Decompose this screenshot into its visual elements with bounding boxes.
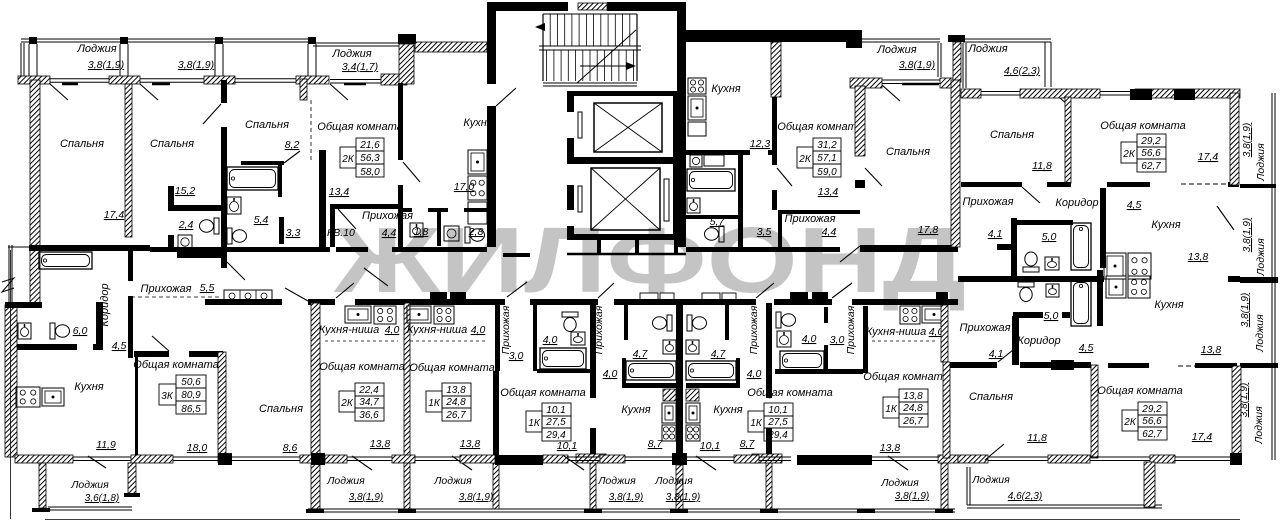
svg-text:Лоджия: Лоджия	[967, 43, 1007, 55]
svg-text:3,8(1,9): 3,8(1,9)	[178, 59, 214, 71]
svg-text:4,6(2,3): 4,6(2,3)	[1004, 65, 1040, 77]
svg-text:27,5: 27,5	[767, 417, 788, 428]
svg-text:31,2: 31,2	[817, 140, 837, 151]
svg-text:18,0: 18,0	[187, 442, 208, 454]
svg-text:3,8(1,9): 3,8(1,9)	[666, 492, 700, 503]
svg-text:17,4: 17,4	[1198, 151, 1219, 163]
svg-text:Прихожая: Прихожая	[959, 322, 1010, 334]
svg-text:Кухня: Кухня	[1151, 219, 1180, 231]
svg-text:3,6(1,8): 3,6(1,8)	[85, 493, 119, 504]
svg-text:2К: 2К	[1123, 417, 1137, 428]
svg-text:11,8: 11,8	[1027, 432, 1047, 444]
svg-text:12,3: 12,3	[750, 138, 771, 150]
svg-text:4,6(2,3): 4,6(2,3)	[1008, 491, 1042, 502]
svg-text:Лоджия: Лоджия	[1255, 143, 1267, 182]
svg-text:Общая комната: Общая комната	[747, 387, 832, 399]
svg-text:59,0: 59,0	[817, 167, 837, 178]
svg-text:11,8: 11,8	[1032, 160, 1052, 172]
svg-text:3К: 3К	[161, 391, 174, 402]
svg-text:2К: 2К	[1122, 149, 1136, 160]
svg-text:21,6: 21,6	[359, 140, 380, 151]
svg-text:Кухня-ниша: Кухня-ниша	[866, 326, 926, 338]
svg-text:17,8: 17,8	[918, 224, 939, 236]
svg-text:80,9: 80,9	[181, 390, 201, 401]
svg-text:3,8(1,9): 3,8(1,9)	[1242, 123, 1253, 157]
svg-text:24,8: 24,8	[902, 403, 923, 414]
svg-text:3,8(1,9): 3,8(1,9)	[1242, 218, 1253, 252]
svg-text:Общая комната: Общая комната	[777, 121, 862, 133]
svg-text:3,8(1,9): 3,8(1,9)	[609, 492, 643, 503]
svg-text:5,4: 5,4	[254, 214, 269, 226]
svg-text:Кухня: Кухня	[621, 404, 650, 416]
svg-text:2К: 2К	[340, 398, 354, 409]
svg-text:58,0: 58,0	[360, 167, 380, 178]
svg-text:Общая комната: Общая комната	[319, 361, 404, 373]
svg-text:Спальня: Спальня	[60, 138, 104, 150]
svg-text:Прихожая: Прихожая	[845, 305, 857, 354]
svg-text:56,3: 56,3	[360, 153, 380, 164]
svg-text:4,0: 4,0	[471, 324, 486, 336]
svg-text:Лоджия: Лоджия	[1255, 238, 1267, 277]
svg-text:3,4(1,7): 3,4(1,7)	[342, 61, 378, 73]
svg-text:Общая комната: Общая комната	[863, 371, 948, 383]
svg-text:Лоджия: Лоджия	[1254, 314, 1266, 353]
svg-text:Спальня: Спальня	[150, 138, 194, 150]
svg-text:Лоджия: Лоджия	[597, 475, 636, 487]
svg-text:13,8: 13,8	[460, 438, 481, 450]
svg-text:Общая комната: Общая комната	[409, 362, 494, 374]
svg-text:10,1: 10,1	[700, 440, 720, 452]
svg-text:Лоджия: Лоджия	[1253, 406, 1265, 445]
svg-text:17,4: 17,4	[104, 209, 125, 221]
svg-text:10,1: 10,1	[768, 405, 787, 416]
svg-text:36,6: 36,6	[359, 410, 379, 421]
svg-text:Прихожая: Прихожая	[500, 305, 512, 354]
svg-text:50,6: 50,6	[181, 377, 201, 388]
svg-text:4,1: 4,1	[988, 228, 1003, 240]
svg-text:29,4: 29,4	[545, 430, 566, 441]
svg-text:2К: 2К	[798, 154, 812, 165]
svg-text:Кухня-ниша: Кухня-ниша	[407, 324, 467, 336]
svg-text:26,7: 26,7	[902, 416, 923, 427]
svg-text:Прихожая: Прихожая	[784, 213, 835, 225]
svg-text:Кухня: Кухня	[711, 83, 740, 95]
svg-text:56,6: 56,6	[1142, 416, 1162, 427]
svg-text:13,8: 13,8	[446, 385, 466, 396]
svg-text:13,8: 13,8	[903, 391, 923, 402]
svg-text:Лоджия: Лоджия	[331, 48, 371, 60]
svg-text:Лоджия: Лоджия	[326, 475, 365, 487]
svg-text:4,0: 4,0	[747, 368, 762, 380]
svg-text:8,7: 8,7	[648, 438, 664, 450]
svg-text:Кухня: Кухня	[713, 404, 742, 416]
svg-text:8,6: 8,6	[283, 442, 298, 454]
svg-text:1К: 1К	[750, 418, 763, 429]
svg-text:4,0: 4,0	[543, 334, 558, 346]
svg-text:4,1: 4,1	[989, 348, 1004, 360]
svg-text:Спальня: Спальня	[245, 119, 289, 131]
svg-text:ЖИЛФОНД: ЖИЛФОНД	[333, 208, 966, 312]
svg-text:3,8(1,9): 3,8(1,9)	[895, 491, 929, 502]
svg-text:57,1: 57,1	[817, 153, 836, 164]
svg-text:Лоджия: Лоджия	[876, 44, 916, 56]
svg-text:4,0: 4,0	[385, 324, 400, 336]
svg-text:5,0: 5,0	[1042, 231, 1057, 243]
svg-text:10,1: 10,1	[557, 440, 577, 452]
svg-text:24,8: 24,8	[445, 397, 466, 408]
svg-text:4,4: 4,4	[382, 227, 397, 239]
svg-text:4,5: 4,5	[1127, 199, 1142, 211]
svg-text:Общая комната: Общая комната	[1097, 385, 1182, 397]
svg-text:4,0: 4,0	[802, 333, 817, 345]
svg-text:Лоджия: Лоджия	[433, 475, 472, 487]
svg-text:3,3: 3,3	[286, 227, 301, 239]
svg-text:Спальня: Спальня	[990, 129, 1034, 141]
svg-text:Коридор: Коридор	[1017, 335, 1060, 347]
svg-text:Прихожая: Прихожая	[748, 305, 760, 354]
svg-text:6,0: 6,0	[73, 325, 88, 337]
svg-text:4,7: 4,7	[633, 348, 649, 360]
svg-text:3,8(1,9): 3,8(1,9)	[349, 492, 383, 503]
svg-text:4,0: 4,0	[603, 368, 618, 380]
svg-text:Прихожая: Прихожая	[962, 196, 1013, 208]
svg-text:3,8(1,9): 3,8(1,9)	[1240, 293, 1251, 327]
svg-text:11,9: 11,9	[96, 439, 116, 451]
svg-text:22,4: 22,4	[358, 385, 379, 396]
svg-text:29,2: 29,2	[1141, 404, 1162, 415]
svg-text:27,5: 27,5	[545, 417, 566, 428]
svg-text:4,7: 4,7	[711, 348, 727, 360]
svg-text:8,7: 8,7	[740, 438, 756, 450]
svg-text:Общая комната: Общая комната	[500, 387, 585, 399]
svg-text:Спальня: Спальня	[259, 403, 303, 415]
svg-text:15,2: 15,2	[175, 185, 196, 197]
svg-text:1К: 1К	[885, 404, 898, 415]
svg-text:1К: 1К	[428, 398, 441, 409]
svg-text:17,4: 17,4	[1192, 431, 1213, 443]
svg-text:3,8(1,9): 3,8(1,9)	[459, 492, 493, 503]
svg-text:Лоджия: Лоджия	[654, 475, 693, 487]
svg-text:Лоджия: Лоджия	[76, 43, 116, 55]
svg-text:Прихожая: Прихожая	[593, 305, 605, 354]
svg-text:13,8: 13,8	[1201, 344, 1222, 356]
svg-text:3,8(1,9): 3,8(1,9)	[88, 59, 124, 71]
svg-text:10,1: 10,1	[546, 405, 565, 416]
svg-text:Общая комната: Общая комната	[317, 121, 402, 133]
svg-text:Общая комната: Общая комната	[133, 359, 218, 371]
svg-text:Лоджия: Лоджия	[971, 474, 1010, 486]
svg-text:Прихожая: Прихожая	[140, 283, 191, 295]
svg-text:62,7: 62,7	[1141, 161, 1161, 172]
svg-text:4,5: 4,5	[1079, 342, 1094, 354]
svg-text:5,5: 5,5	[200, 282, 215, 294]
svg-text:Коридор: Коридор	[1055, 197, 1098, 209]
svg-text:3,8(1,9): 3,8(1,9)	[899, 59, 935, 71]
svg-text:2К: 2К	[341, 154, 355, 165]
svg-text:Лоджия: Лоджия	[880, 477, 919, 489]
svg-text:Кухня: Кухня	[74, 381, 103, 393]
svg-text:86,5: 86,5	[181, 404, 201, 415]
svg-text:1К: 1К	[528, 418, 541, 429]
svg-text:4,5: 4,5	[112, 340, 127, 352]
svg-text:Лоджия: Лоджия	[70, 479, 109, 491]
svg-text:5,0: 5,0	[1044, 310, 1059, 322]
svg-text:4,4: 4,4	[822, 226, 837, 238]
svg-text:13,4: 13,4	[818, 186, 839, 198]
svg-text:2,4: 2,4	[178, 219, 194, 231]
svg-text:Общая комната: Общая комната	[1100, 120, 1185, 132]
svg-text:26,7: 26,7	[445, 410, 466, 421]
svg-text:Кухня: Кухня	[1154, 299, 1183, 311]
svg-text:29,4: 29,4	[767, 430, 788, 441]
svg-text:56,6: 56,6	[1141, 148, 1161, 159]
svg-text:34,7: 34,7	[359, 397, 379, 408]
svg-text:13,8: 13,8	[880, 442, 901, 454]
svg-text:Кухня-ниша: Кухня-ниша	[319, 324, 379, 336]
svg-text:3,0: 3,0	[830, 334, 845, 346]
svg-text:29,2: 29,2	[1140, 136, 1161, 147]
svg-text:13,8: 13,8	[1188, 251, 1209, 263]
svg-text:3,5: 3,5	[757, 226, 772, 238]
svg-text:13,4: 13,4	[329, 186, 350, 198]
svg-text:Спальня: Спальня	[886, 146, 930, 158]
svg-text:13,8: 13,8	[370, 438, 391, 450]
svg-text:Спальня: Спальня	[969, 391, 1013, 403]
svg-text:3,0: 3,0	[509, 350, 524, 362]
svg-text:62,7: 62,7	[1142, 429, 1162, 440]
svg-text:8,2: 8,2	[285, 139, 300, 151]
